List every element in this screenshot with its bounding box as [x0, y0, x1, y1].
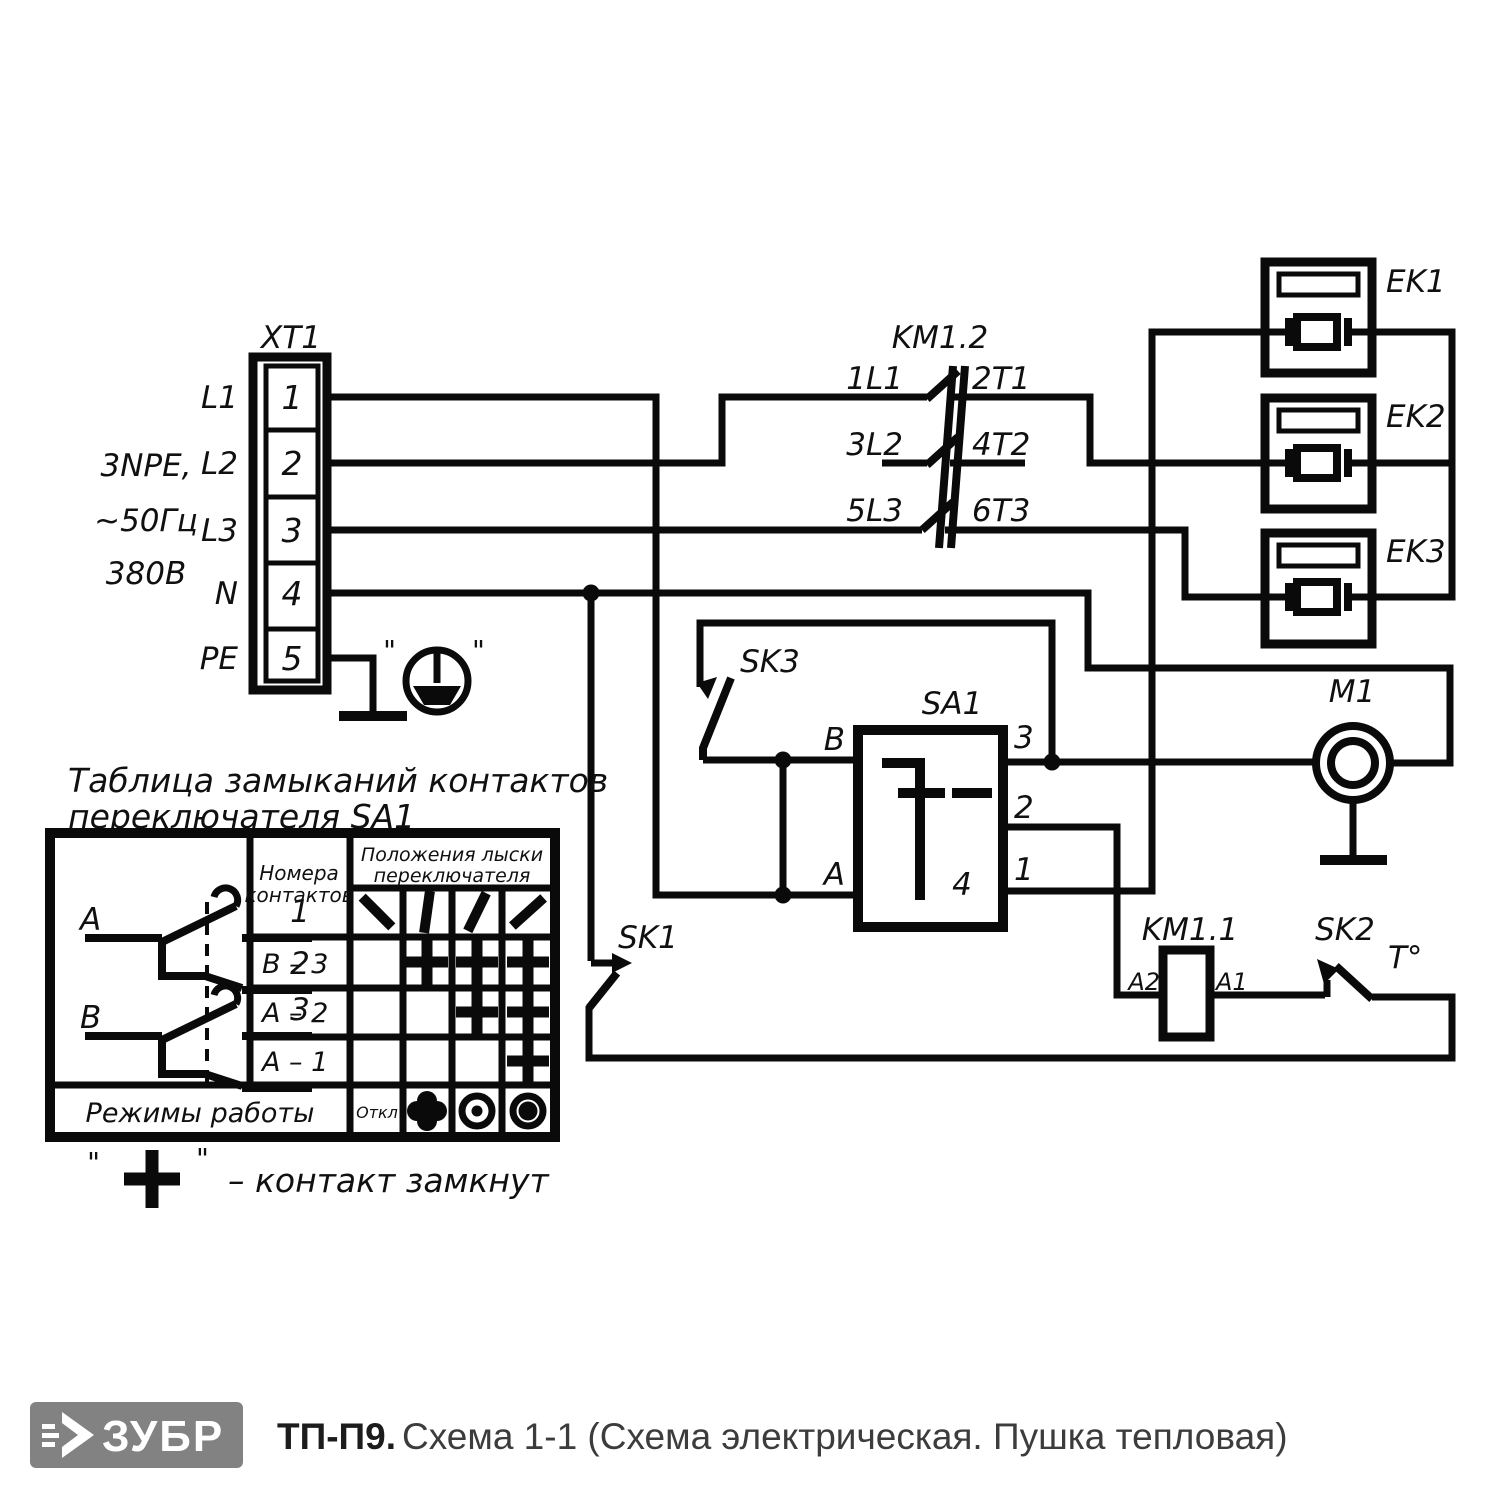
km12-4t2: 4T2 — [972, 427, 1030, 463]
table-title-line1: Таблица замыканий контактов — [68, 761, 608, 800]
sa1-terminal-b: B — [824, 722, 845, 758]
schematic-page: XT1 1 2 3 4 5 L1 L2 L3 N PE 3NPE, ~50Гц … — [0, 0, 1500, 1500]
km12-2t1: 2T1 — [972, 361, 1030, 397]
sketch-pole-b-blade1 — [162, 1004, 236, 1040]
wire-bottom-bus — [589, 997, 1452, 1058]
legend-text: – контакт замкнут — [228, 1161, 550, 1200]
ek3-label: EK3 — [1386, 534, 1446, 570]
pe-ground: " " — [327, 634, 485, 716]
sketch-label-b: B — [80, 1000, 101, 1036]
wire-label-pe: PE — [200, 641, 239, 677]
sketch-label-a: A — [78, 902, 101, 938]
sa1-terminal-2: 2 — [1014, 790, 1034, 826]
table-modes-label: Режимы работы — [86, 1098, 315, 1129]
m1-label: M1 — [1329, 674, 1375, 710]
km11-a1: A1 — [1214, 968, 1248, 996]
fan-petal-icon — [427, 1101, 447, 1121]
km12-linkage — [939, 366, 965, 548]
sk2-label: SK2 — [1315, 912, 1375, 948]
contactor-coil-km11: KM1.1 A2 A1 — [1126, 912, 1247, 1037]
wire-label-l2: L2 — [201, 446, 238, 482]
heat1-dot-icon — [472, 1106, 483, 1117]
sa1-position-symbol-icon — [882, 763, 992, 900]
wire-6t3-to-ek3 — [945, 530, 1265, 597]
sa1-terminal-3: 3 — [1014, 720, 1034, 756]
km12-1l1: 1L1 — [846, 361, 903, 397]
terminal-5: 5 — [282, 639, 303, 678]
mode-switch-sa1: SA1 B A 3 2 1 4 — [822, 686, 1034, 927]
sa1-terminal-1: 1 — [1014, 852, 1034, 888]
footer-subtitle: Схема 1-1 (Схема электрическая. Пушка те… — [402, 1416, 1288, 1457]
legend-quote-left: " — [87, 1146, 100, 1179]
heater-ek2: EK2 — [1265, 398, 1446, 509]
sa1-label: SA1 — [922, 686, 983, 722]
sk2-temp-label: T° — [1388, 940, 1422, 976]
table-hdr-contacts-1: Номера — [259, 861, 339, 885]
terminal-1: 1 — [282, 378, 303, 417]
terminal-3: 3 — [282, 511, 303, 550]
heater-ek1: EK1 — [1265, 262, 1446, 373]
fan-mode-icon — [407, 1091, 447, 1131]
brand-bar-icon — [42, 1424, 55, 1429]
knob-position-icon — [512, 898, 543, 926]
brand-bar-icon — [42, 1433, 59, 1438]
sketch-label-2: 2 — [290, 946, 310, 982]
switch-sk1: SK1 — [589, 920, 678, 1008]
sk1-blade — [589, 973, 617, 1008]
supply-line1: 3NPE, — [100, 448, 191, 484]
km11-label: KM1.1 — [1142, 912, 1238, 948]
brand-name: ЗУБР — [102, 1412, 224, 1461]
earth-quote-right: " — [472, 634, 485, 667]
supply-line3: 380В — [106, 556, 186, 592]
sk3-label: SK3 — [740, 644, 800, 680]
km11-coil-box — [1163, 950, 1210, 1037]
m1-inner-circle-icon — [1331, 741, 1375, 785]
ek3-element-icon — [1297, 582, 1337, 612]
earth-quote-left: " — [383, 634, 396, 667]
ek3-top-bar-icon — [1279, 545, 1358, 566]
sketch-pole-a-lead — [85, 938, 205, 976]
footer-model: ТП-П9. — [277, 1416, 396, 1457]
switch-sk3: SK3 — [697, 644, 800, 760]
wire-label-n: N — [215, 576, 238, 612]
sketch-label-1: 1 — [290, 894, 310, 930]
heat1-mode-icon — [462, 1096, 492, 1126]
legend-quote-right: " — [196, 1142, 209, 1175]
sk1-contact-icon — [612, 953, 632, 973]
switch-sk2: SK2 T° — [1315, 912, 1422, 999]
sa1-terminal-4: 4 — [952, 867, 972, 903]
terminal-block-xt1: XT1 1 2 3 4 5 L1 L2 L3 N PE 3NPE, ~50Гц … — [94, 320, 327, 690]
sketch-pole-b-hook-icon — [214, 986, 238, 1004]
ek2-label: EK2 — [1386, 399, 1446, 435]
table-hdr-positions-2: переключателя — [374, 865, 531, 887]
sa1-box — [858, 730, 1003, 927]
sa1-terminal-a: A — [822, 857, 845, 893]
sk1-label: SK1 — [618, 920, 678, 956]
sk2-blade — [1336, 966, 1372, 999]
wire-sa1-1-to-ek1 — [1003, 332, 1265, 891]
closed-contact-legend: " " – контакт замкнут — [87, 1142, 550, 1208]
motor-m1: M1 — [1316, 674, 1390, 860]
km11-a2: A2 — [1126, 968, 1160, 996]
junction-dot — [775, 887, 792, 904]
wire-l2-to-km12 — [327, 397, 927, 463]
contactor-km12: KM1.2 1L1 2T1 3L2 4T2 5L3 6T3 — [846, 320, 1030, 548]
brand-bar-icon — [42, 1442, 55, 1447]
supply-line2: ~50Гц — [94, 503, 198, 539]
heater-ek3: EK3 — [1265, 533, 1446, 644]
legend-plus-icon — [124, 1150, 180, 1208]
knob-position-icon — [468, 893, 486, 931]
sketch-pole-b-lead — [85, 1036, 205, 1074]
wire-n-to-m1 — [327, 593, 1450, 763]
ek1-element-icon — [1297, 317, 1337, 347]
km12-3l2: 3L2 — [846, 427, 903, 463]
heat2-mode-icon — [513, 1096, 543, 1126]
terminal-2: 2 — [282, 444, 303, 483]
knob-position-icon — [424, 891, 430, 933]
km12-label: KM1.2 — [892, 320, 988, 356]
closure-table: Таблица замыканий контактов переключател… — [50, 761, 608, 1137]
junction-dot — [775, 752, 792, 769]
ek2-element-icon — [1297, 448, 1337, 478]
junction-dot — [1044, 754, 1061, 771]
km12-6t3: 6T3 — [972, 493, 1030, 529]
sketch-pole-a-blade1 — [162, 906, 236, 942]
sketch-label-3: 3 — [290, 992, 310, 1028]
junction-dot — [583, 585, 600, 602]
ek1-label: EK1 — [1386, 264, 1446, 300]
sketch-pole-a-hook-icon — [214, 888, 238, 906]
footer-bar: ЗУБР ТП-П9. Схема 1-1 (Схема электрическ… — [30, 1402, 1288, 1468]
fan-petal-icon — [407, 1101, 427, 1121]
table-off-label: Откл — [356, 1103, 398, 1122]
xt1-label: XT1 — [259, 320, 321, 356]
km12-5l3: 5L3 — [846, 493, 903, 529]
terminal-4: 4 — [282, 574, 303, 613]
earth-pad-icon — [413, 686, 461, 705]
heat2-dot-icon — [519, 1102, 538, 1121]
ek2-top-bar-icon — [1279, 410, 1358, 431]
table-hdr-positions-1: Положения лыски — [361, 844, 543, 866]
wire-label-l3: L3 — [201, 513, 238, 549]
table-row-a1: А – 1 — [260, 1047, 328, 1078]
wire-label-l1: L1 — [201, 380, 238, 416]
closure-marks — [406, 939, 549, 1084]
electrical-schematic: XT1 1 2 3 4 5 L1 L2 L3 N PE 3NPE, ~50Гц … — [0, 0, 1500, 1500]
ek1-top-bar-icon — [1279, 274, 1358, 295]
wire-pe — [327, 658, 373, 712]
knob-position-icon — [362, 897, 392, 927]
